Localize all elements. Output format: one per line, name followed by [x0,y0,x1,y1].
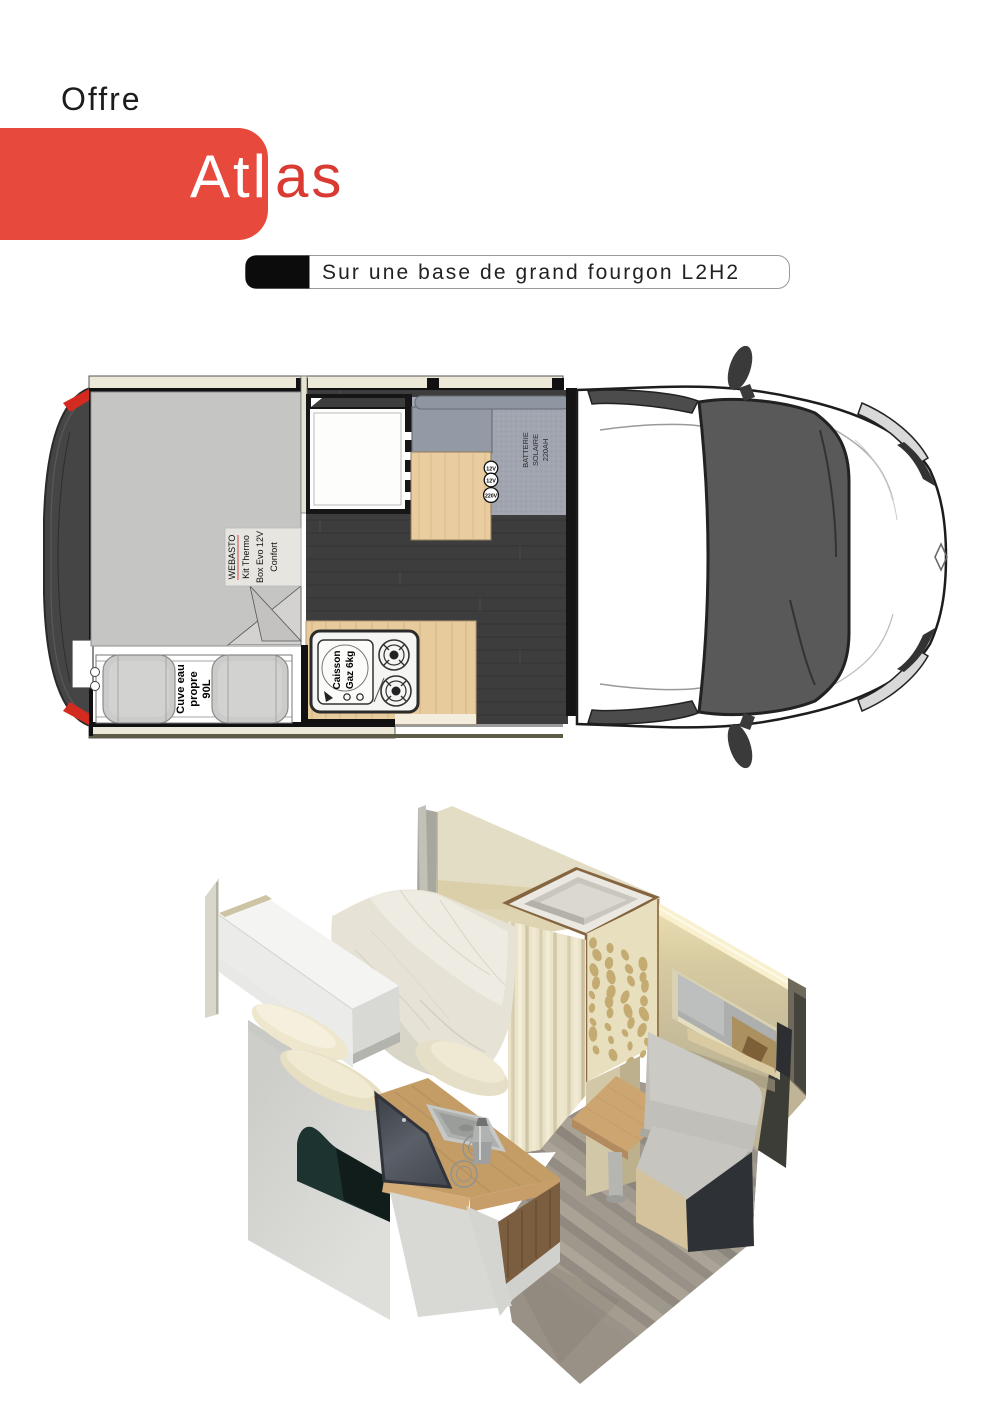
svg-text:12V: 12V [486,478,496,484]
svg-text:Confort: Confort [269,542,279,572]
svg-text:Gaz 6kg: Gaz 6kg [345,651,356,689]
svg-text:Caisson: Caisson [332,651,343,690]
svg-text:BATTERIE: BATTERIE [521,432,530,468]
svg-text:Cuve eau: Cuve eau [175,664,187,714]
svg-text:as: as [275,143,344,210]
svg-text:Box Evo 12V: Box Evo 12V [255,531,265,583]
svg-text:90L: 90L [201,679,213,698]
svg-text:220V: 220V [485,493,498,499]
svg-text:propre: propre [188,671,200,706]
svg-text:12V: 12V [486,466,496,472]
svg-text:Sur une base de grand fourgon: Sur une base de grand fourgon L2H2 [322,261,740,284]
svg-text:Offre: Offre [61,81,142,117]
svg-text:Kit Thermo: Kit Thermo [241,535,251,579]
svg-text:220AH: 220AH [541,439,550,462]
svg-text:SOLAIRE: SOLAIRE [531,434,540,466]
svg-text:WEBASTO: WEBASTO [227,535,237,580]
svg-text:Atl: Atl [190,143,269,210]
